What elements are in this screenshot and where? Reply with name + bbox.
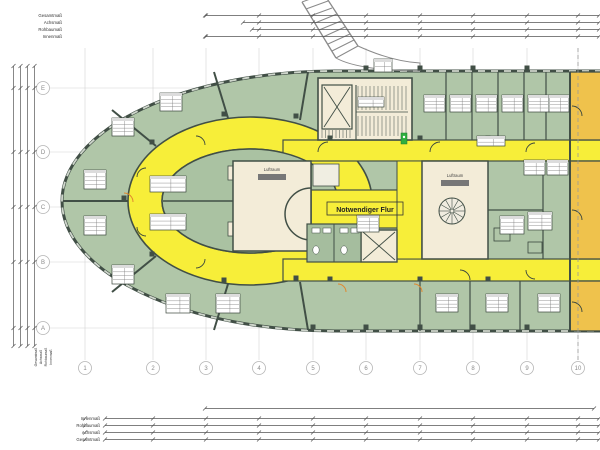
room-stamp — [166, 294, 190, 313]
room-stamp — [502, 95, 523, 112]
floor-plan-page: EDCBA12345678910 Notwendiger Flur Luftra… — [0, 0, 600, 450]
dim-label-rotated: Rohbaumaß — [44, 348, 48, 367]
grid-bubble: 1 — [79, 362, 92, 375]
void-left-tag — [258, 174, 286, 180]
room-stamp — [112, 265, 134, 284]
dim-label: Gesamtmaß — [76, 437, 100, 442]
orange-rooms — [570, 72, 600, 331]
room-stamp — [436, 294, 458, 312]
grid-bubble: 7 — [414, 362, 427, 375]
bridge-stair — [302, 0, 420, 71]
room-stamp — [477, 136, 505, 146]
dim-label: Gesamtmaß — [38, 13, 62, 18]
grid-bubble: 10 — [572, 362, 585, 375]
dim-label: Achsmaß — [82, 430, 101, 435]
grid-bubble: 9 — [521, 362, 534, 375]
room-stamp — [358, 97, 384, 107]
grid-bubble-label: E — [41, 86, 45, 92]
grid-bubble: 3 — [200, 362, 213, 375]
room-stamp — [528, 95, 549, 112]
small-room — [313, 164, 339, 186]
grid-bubble: C — [37, 201, 50, 214]
grid-bubble-label: C — [41, 205, 46, 211]
sink — [323, 228, 331, 233]
sink — [312, 228, 320, 233]
room-stamp — [528, 212, 552, 230]
room-stamp — [216, 294, 240, 313]
room-stamp — [500, 216, 524, 234]
exit-sign-icon — [401, 133, 407, 144]
grid-bubble-label: 10 — [575, 366, 582, 372]
corridor-label: Notwendiger Flur — [336, 207, 394, 214]
dim-label: Rohbaumaß — [38, 27, 62, 32]
room-stamp — [549, 95, 569, 112]
room-stamp — [486, 294, 508, 312]
dim-label: Innenmaß — [43, 34, 63, 39]
corridor-north — [283, 140, 600, 161]
grid-bubble: A — [37, 322, 50, 335]
void-right-label: Luftraum — [447, 173, 464, 178]
room-stamp — [150, 214, 186, 230]
room-stamp — [160, 93, 182, 111]
room-stamp — [424, 95, 445, 112]
room-stamp — [357, 215, 379, 232]
room-stamp — [538, 294, 560, 312]
grid-bubble: E — [37, 82, 50, 95]
room-stamp — [374, 59, 392, 72]
grid-bubble: 6 — [360, 362, 373, 375]
dim-label: Rohbaumaß — [76, 423, 100, 428]
grid-bubble: B — [37, 256, 50, 269]
room-stamp — [150, 176, 186, 192]
grid-bubble: D — [37, 146, 50, 159]
corridor-connector — [397, 161, 422, 259]
toilet — [313, 246, 319, 254]
dim-label: Innenmaß — [81, 416, 101, 421]
toilet — [341, 246, 347, 254]
floor-plan-drawing: EDCBA12345678910 Notwendiger Flur Luftra… — [0, 0, 600, 450]
grid-bubble-label: B — [41, 260, 45, 266]
grid-bubble: 5 — [307, 362, 320, 375]
grid-bubble: 8 — [467, 362, 480, 375]
room-stamp — [450, 95, 471, 112]
grid-bubble-label: A — [41, 326, 45, 332]
spiral-stair — [439, 198, 465, 224]
wc-block — [307, 224, 361, 262]
void-left-label: Luftraum — [264, 167, 281, 172]
room-stamp — [547, 160, 568, 175]
room-stamp — [476, 95, 497, 112]
grid-bubble: 2 — [147, 362, 160, 375]
grid-bubble-label: D — [41, 150, 46, 156]
dim-label-rotated: Innenmaß — [49, 349, 53, 364]
room-stamp — [112, 118, 134, 136]
dim-label: Achsmaß — [44, 20, 63, 25]
void-right-tag — [441, 180, 469, 186]
grid-bubble: 4 — [253, 362, 266, 375]
room-stamp — [524, 160, 545, 175]
room-stamp — [84, 216, 106, 235]
room-stamp — [84, 170, 106, 189]
dim-label-rotated: Achsmaß — [39, 350, 43, 364]
dim-label-rotated: Gesamtmaß — [34, 348, 38, 367]
sink — [340, 228, 348, 233]
